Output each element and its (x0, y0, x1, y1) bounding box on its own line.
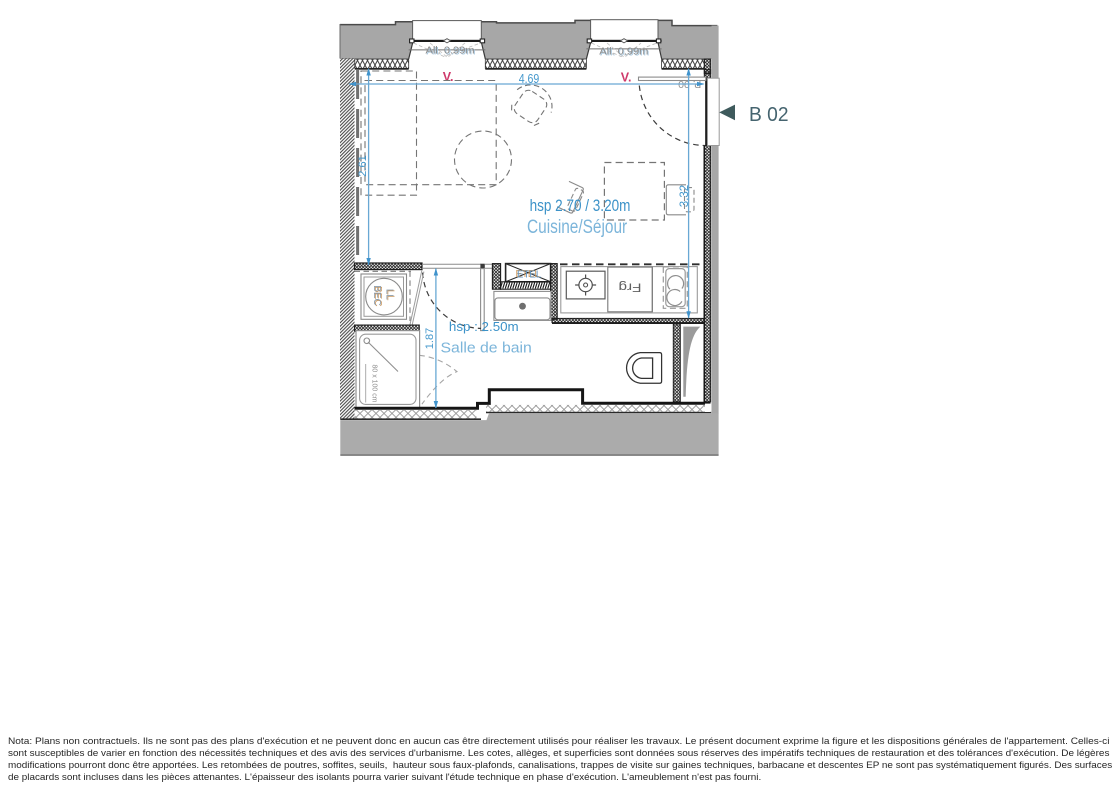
svg-text:Cuisine/Séjour: Cuisine/Séjour (527, 216, 628, 238)
svg-text:1.87: 1.87 (424, 328, 436, 349)
svg-text:4.69: 4.69 (519, 71, 540, 86)
svg-text:Frg: Frg (619, 281, 642, 295)
svg-text:ETEL: ETEL (517, 270, 542, 281)
svg-text:V.: V. (621, 70, 632, 84)
svg-text:V.: V. (443, 70, 454, 84)
svg-text:All. 0.99m: All. 0.99m (599, 46, 648, 58)
svg-text:LL: LL (384, 289, 395, 301)
svg-text:3.32: 3.32 (679, 185, 691, 207)
svg-text:80 x 100 cm: 80 x 100 cm (370, 365, 379, 403)
svg-text:2.61: 2.61 (357, 155, 369, 176)
svg-text:hsp : 2.50m: hsp : 2.50m (449, 319, 519, 334)
svg-text:BEC: BEC (371, 285, 382, 306)
svg-text:All. 0.99m: All. 0.99m (426, 45, 475, 57)
svg-text:B 02: B 02 (749, 103, 789, 126)
svg-text:Salle de bain: Salle de bain (441, 340, 532, 357)
svg-text:hsp 2.70 / 3.20m: hsp 2.70 / 3.20m (530, 197, 631, 215)
